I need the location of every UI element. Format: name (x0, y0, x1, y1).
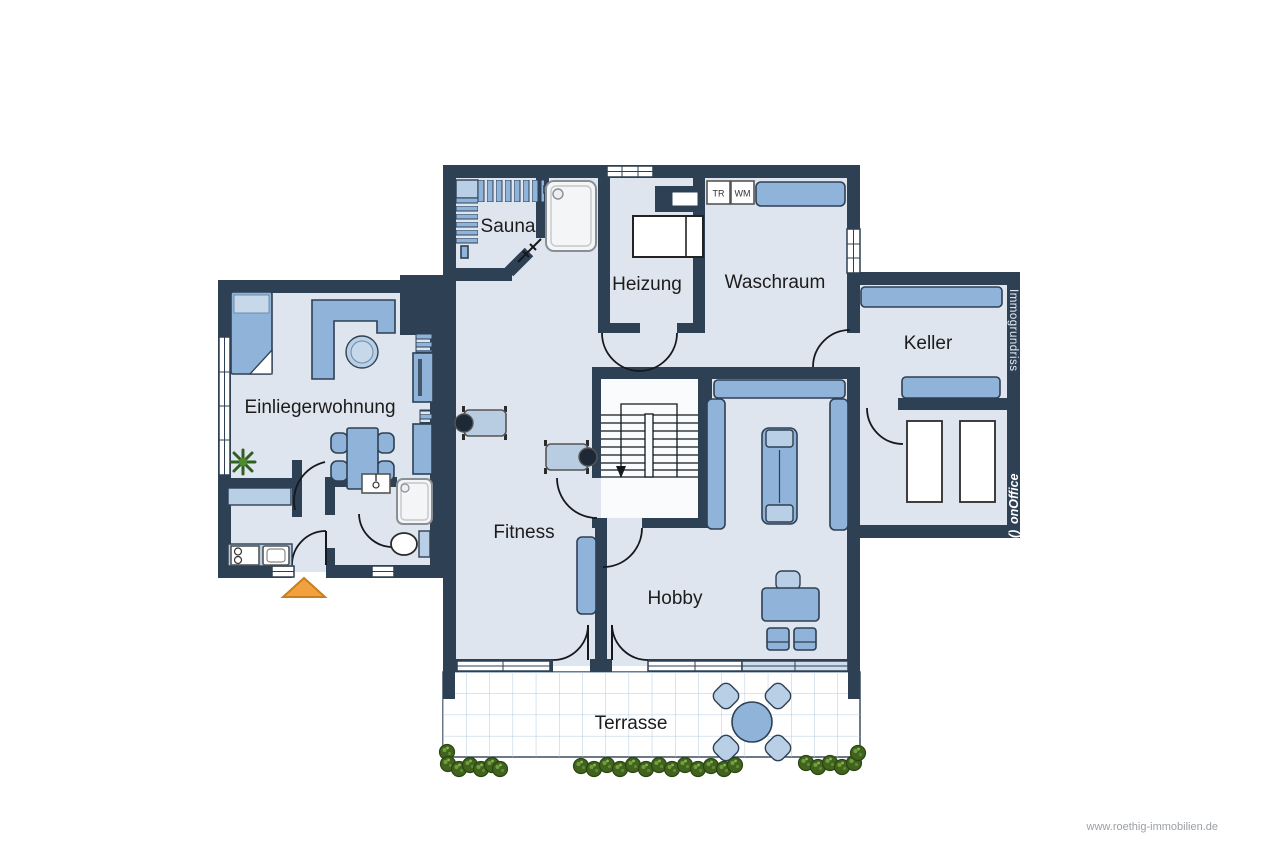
room-label-keller: Keller (904, 333, 953, 354)
keller-cabinet (960, 421, 995, 502)
wardrobe (413, 353, 433, 402)
room-label-waschraum: Waschraum (725, 272, 826, 293)
floor-plan-page: Sauna Heizung Waschraum Keller Einlieger… (0, 0, 1263, 842)
window (742, 661, 848, 671)
shower-tray (546, 181, 596, 251)
sauna-bench-left (456, 198, 478, 246)
watermark-immogrundriss: Immogrundriss (1007, 289, 1019, 372)
radiator (420, 410, 432, 423)
room-label-terrasse: Terrasse (595, 713, 668, 734)
bench-right (830, 399, 848, 530)
room-label-sauna: Sauna (481, 216, 536, 237)
website-watermark: www.roethig-immobilien.de (1086, 821, 1218, 833)
shower-tray (397, 479, 432, 524)
toilet (391, 531, 430, 557)
waschraum-furniture (707, 181, 845, 206)
room-label-heizung: Heizung (612, 274, 682, 295)
window (272, 566, 294, 577)
keller-shelf-mid (902, 377, 1000, 398)
appliance-label-washer: WM (735, 189, 751, 199)
watermarks: Immogrundriss onOffice () www.roethig-im… (1007, 289, 1218, 833)
window (219, 337, 230, 475)
window (607, 166, 653, 177)
room-label-fitness: Fitness (493, 522, 554, 543)
desk (762, 588, 819, 621)
floor-plan-drawing: Sauna Heizung Waschraum Keller Einlieger… (0, 0, 1263, 842)
plant (231, 450, 255, 474)
room-label-hobby: Hobby (648, 588, 703, 609)
entrance-marker (283, 578, 325, 597)
window (847, 229, 860, 273)
terrace-round-table (732, 702, 772, 742)
bench-left (707, 399, 725, 529)
radiator (416, 332, 432, 352)
cabinet (413, 424, 432, 474)
kitchen-cabinet (228, 488, 291, 505)
appliance-label-dryer: TR (713, 189, 725, 199)
radiator (577, 537, 596, 614)
sauna-heater (456, 180, 478, 198)
bed (231, 292, 272, 374)
onoffice-logo-mark: () (1007, 530, 1021, 538)
stool (794, 628, 816, 650)
boiler (633, 216, 703, 257)
onoffice-logo: onOffice (1007, 473, 1021, 524)
heizung-furniture (633, 216, 703, 257)
sideboard (714, 380, 845, 398)
keller-cabinet (907, 421, 942, 502)
laundry-counter (756, 182, 845, 206)
kitchenette (228, 544, 292, 566)
stool (767, 628, 789, 650)
keller-shelf-top (861, 287, 1002, 307)
room-floors (224, 171, 1014, 666)
window (372, 566, 394, 577)
window (648, 661, 742, 671)
game-table (762, 428, 797, 524)
desk-chair (776, 571, 800, 590)
room-label-einliegerwohnung: Einliegerwohnung (244, 397, 395, 418)
sauna-bench-top (478, 180, 544, 202)
window (457, 661, 550, 671)
exercise-bench (455, 406, 507, 440)
